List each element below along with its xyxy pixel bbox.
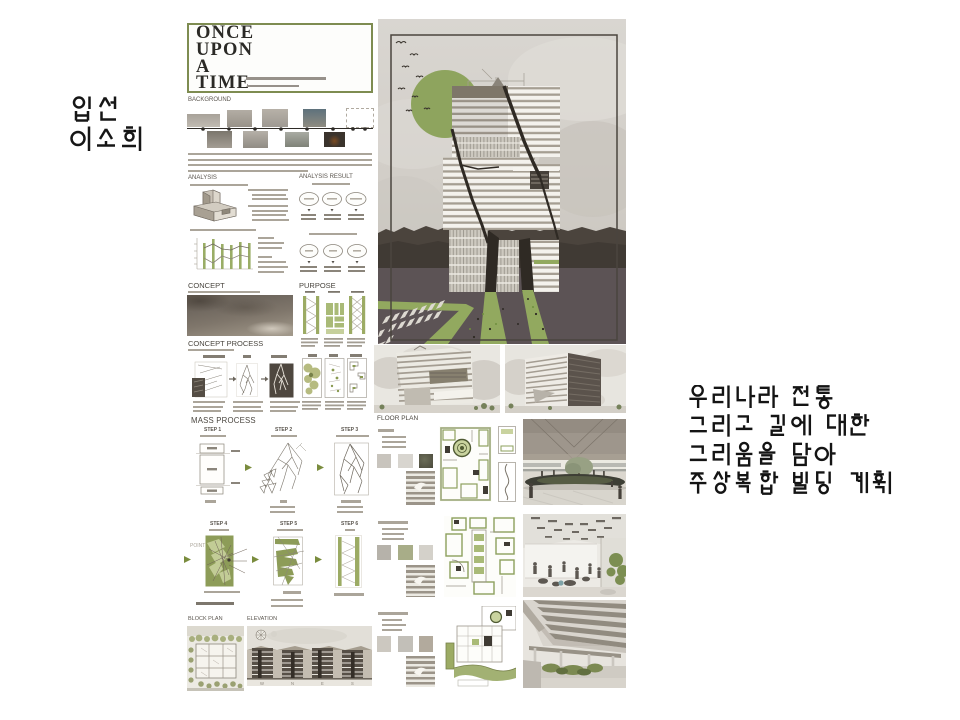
svg-text:W: W (260, 681, 264, 686)
svg-text:S: S (351, 681, 354, 686)
svg-text:E: E (321, 681, 324, 686)
svg-text:N: N (291, 681, 294, 686)
